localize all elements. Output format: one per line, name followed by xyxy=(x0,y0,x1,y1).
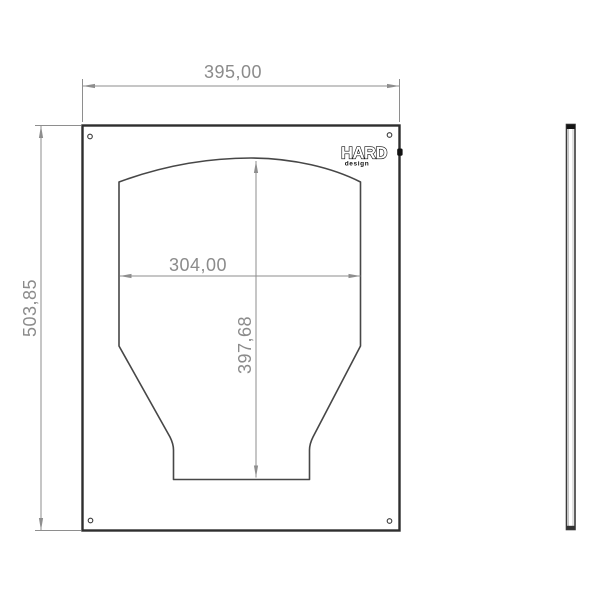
dimension-value-cutout-height: 397,68 xyxy=(235,316,255,374)
cad-drawing-canvas: 395,00 503,85 304,00 xyxy=(0,0,600,600)
mounting-hole-top-left xyxy=(88,134,93,139)
side-profile-bottom-cap xyxy=(567,526,576,530)
dimension-overall-height: 503,85 xyxy=(20,126,81,531)
arrowhead-right xyxy=(387,84,400,88)
dimension-value-overall-width: 395,00 xyxy=(204,62,262,82)
technical-drawing-page: 395,00 503,85 304,00 xyxy=(0,0,600,600)
dimension-value-cutout-width: 304,00 xyxy=(169,255,227,275)
edge-notch xyxy=(397,149,402,156)
side-profile-outline xyxy=(567,125,576,530)
mounting-hole-bottom-left xyxy=(88,518,93,523)
side-profile-top-cap xyxy=(567,125,576,130)
mounting-hole-top-right xyxy=(387,133,392,138)
arrowhead-top xyxy=(39,126,43,139)
arrowhead-left xyxy=(83,84,96,88)
dimension-value-overall-height: 503,85 xyxy=(20,279,40,337)
arrowhead-bottom xyxy=(39,518,43,531)
dimension-overall-width: 395,00 xyxy=(83,62,400,122)
side-view xyxy=(567,125,576,530)
mounting-hole-bottom-right xyxy=(387,519,392,524)
brand-logo-subtext: design xyxy=(345,161,370,168)
